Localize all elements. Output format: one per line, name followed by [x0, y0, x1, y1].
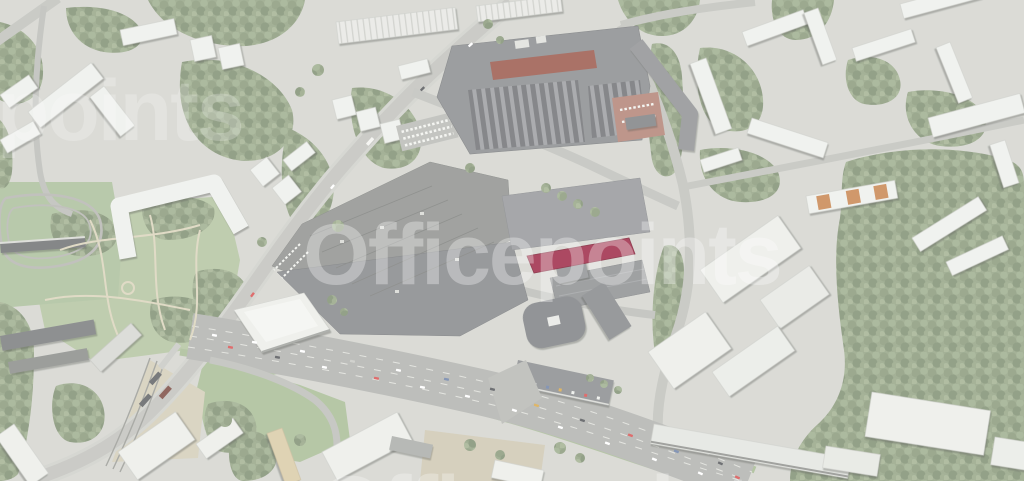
aerial-map-render: Officepoints Officepoints Officepoints	[0, 0, 1024, 481]
watermark-text-top-left: Officepoints	[0, 63, 243, 159]
aerial-map-image: Officepoints Officepoints Officepoints	[0, 0, 1024, 481]
watermark-text-center: Officepoints	[303, 207, 781, 303]
watermark-text-bottom: Officepoints	[318, 459, 796, 481]
